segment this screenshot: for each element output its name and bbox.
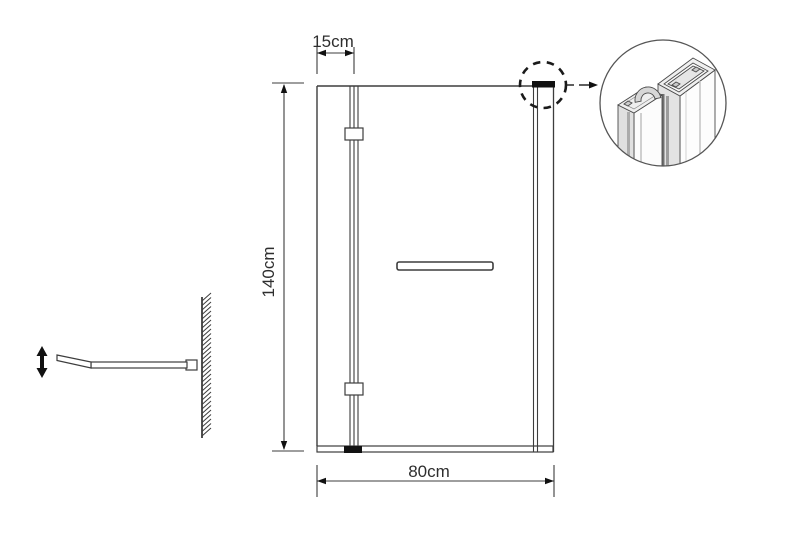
technical-drawing: 15cm 140cm 80cm (0, 0, 800, 533)
towel-bar-handle (397, 262, 493, 270)
wall-profile-cap (532, 81, 555, 88)
upper-hinge (345, 128, 363, 140)
bottom-pivot-block (344, 446, 362, 453)
total-width-label: 80cm (408, 462, 450, 481)
lower-hinge (345, 383, 363, 395)
panel-width-label: 15cm (312, 32, 354, 51)
arm-bar (91, 362, 187, 368)
arm-wall-bracket (186, 360, 197, 370)
technical-drawing-page: 15cm 140cm 80cm (0, 0, 800, 533)
height-label: 140cm (259, 246, 278, 297)
